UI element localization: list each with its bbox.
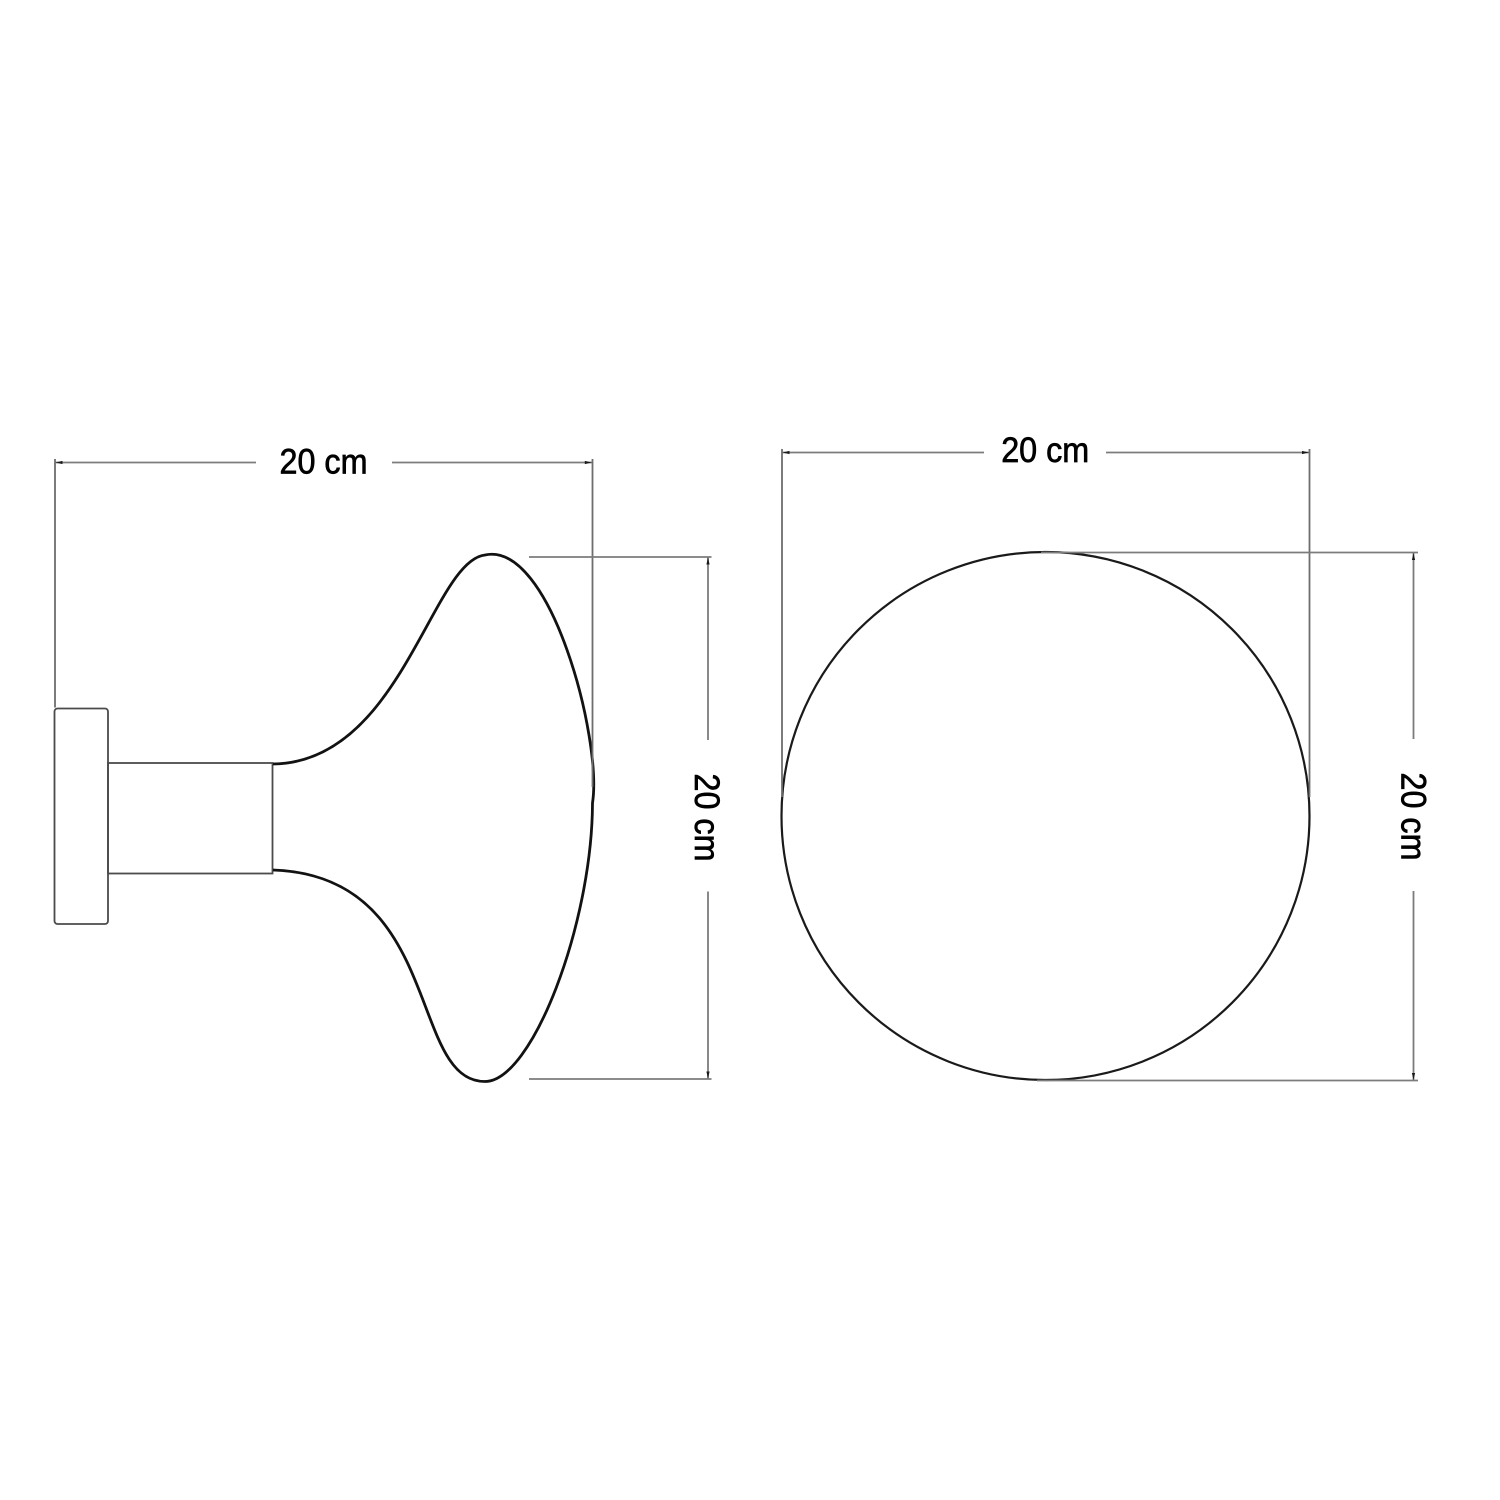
svg-text:20 cm: 20 cm [1394, 773, 1433, 861]
svg-text:20 cm: 20 cm [687, 774, 726, 862]
svg-text:20 cm: 20 cm [1001, 431, 1089, 470]
svg-text:20 cm: 20 cm [280, 443, 368, 482]
